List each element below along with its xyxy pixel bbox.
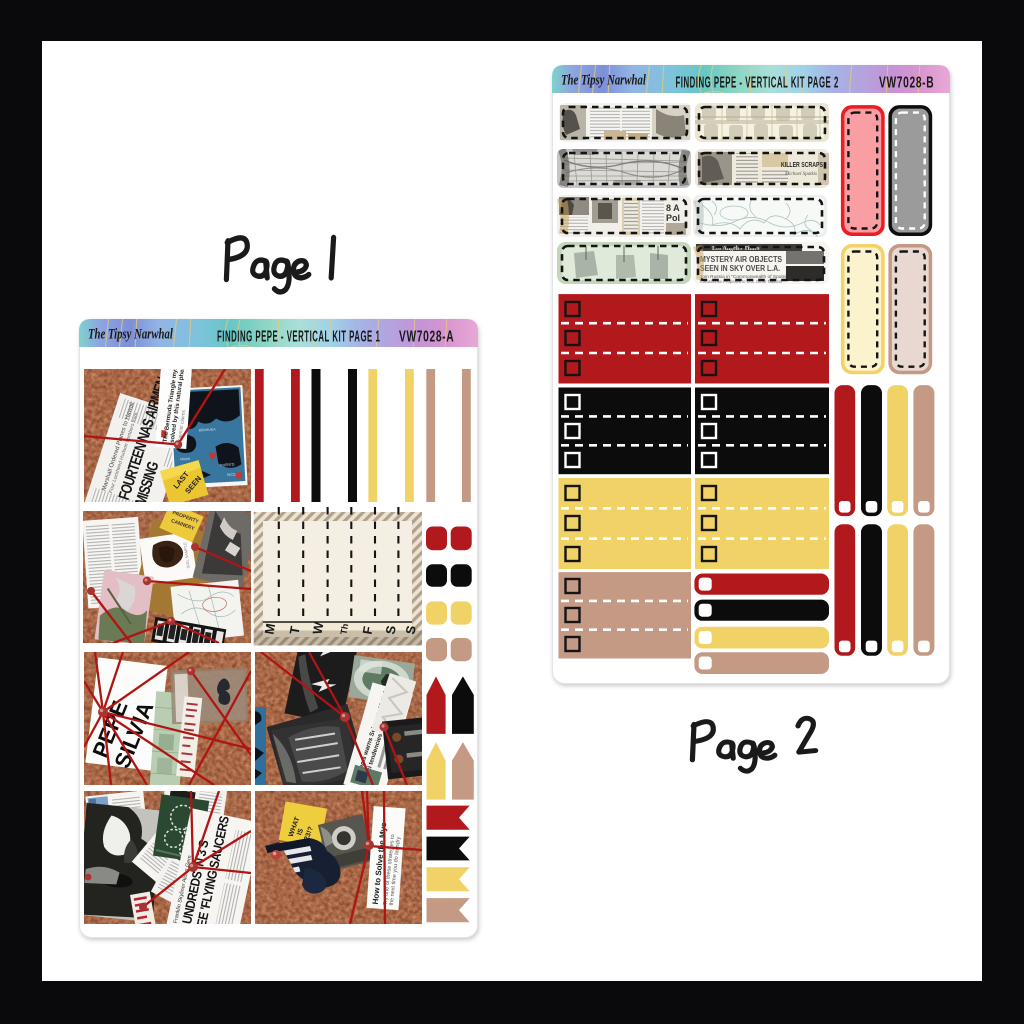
svg-text:VW7028-A: VW7028-A [399,327,454,345]
svg-text:The Tipsy Narwhal: The Tipsy Narwhal [561,72,646,88]
svg-text:VW7028-B: VW7028-B [879,73,934,91]
svg-text:SEEN IN SKY OVER L.A.: SEEN IN SKY OVER L.A. [700,263,780,273]
svg-text:Michael Spatkis: Michael Spatkis [784,171,817,177]
svg-text:Th: Th [339,623,351,636]
svg-text:PUERTO: PUERTO [220,463,235,468]
svg-text:RICO: RICO [227,473,236,477]
svg-text:FINDING PEPE - VERTICAL KIT PA: FINDING PEPE - VERTICAL KIT PAGE 1 [217,327,380,345]
svg-text:MIAMI: MIAMI [180,457,190,462]
svg-text:KILLER SCRAPS: KILLER SCRAPS [781,160,823,169]
svg-text:8 A: 8 A [666,203,680,213]
svg-text:Pol: Pol [666,213,680,223]
svg-text:The Tipsy Narwhal: The Tipsy Narwhal [88,326,173,342]
svg-text:FINDING PEPE - VERTICAL KIT PA: FINDING PEPE - VERTICAL KIT PAGE 2 [676,73,839,91]
